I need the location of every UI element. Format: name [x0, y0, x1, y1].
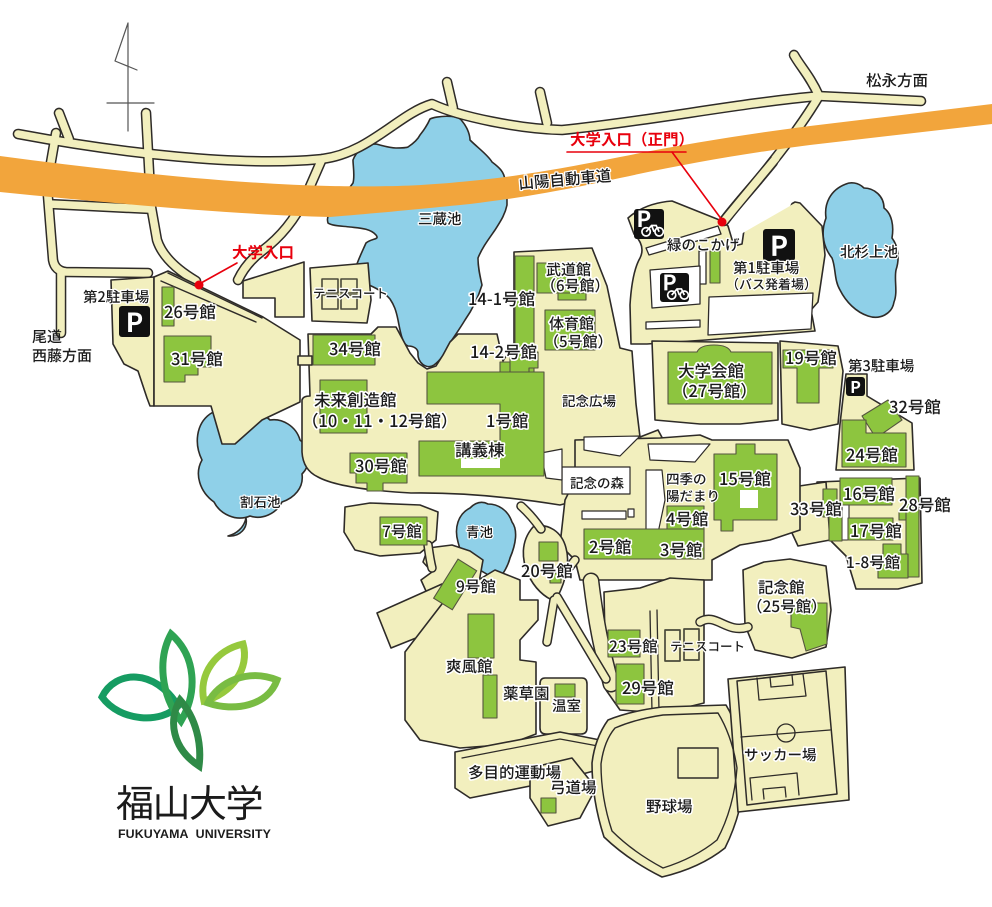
svg-text:FUKUYAMA UNIVERSITY: FUKUYAMA UNIVERSITY	[118, 827, 272, 841]
